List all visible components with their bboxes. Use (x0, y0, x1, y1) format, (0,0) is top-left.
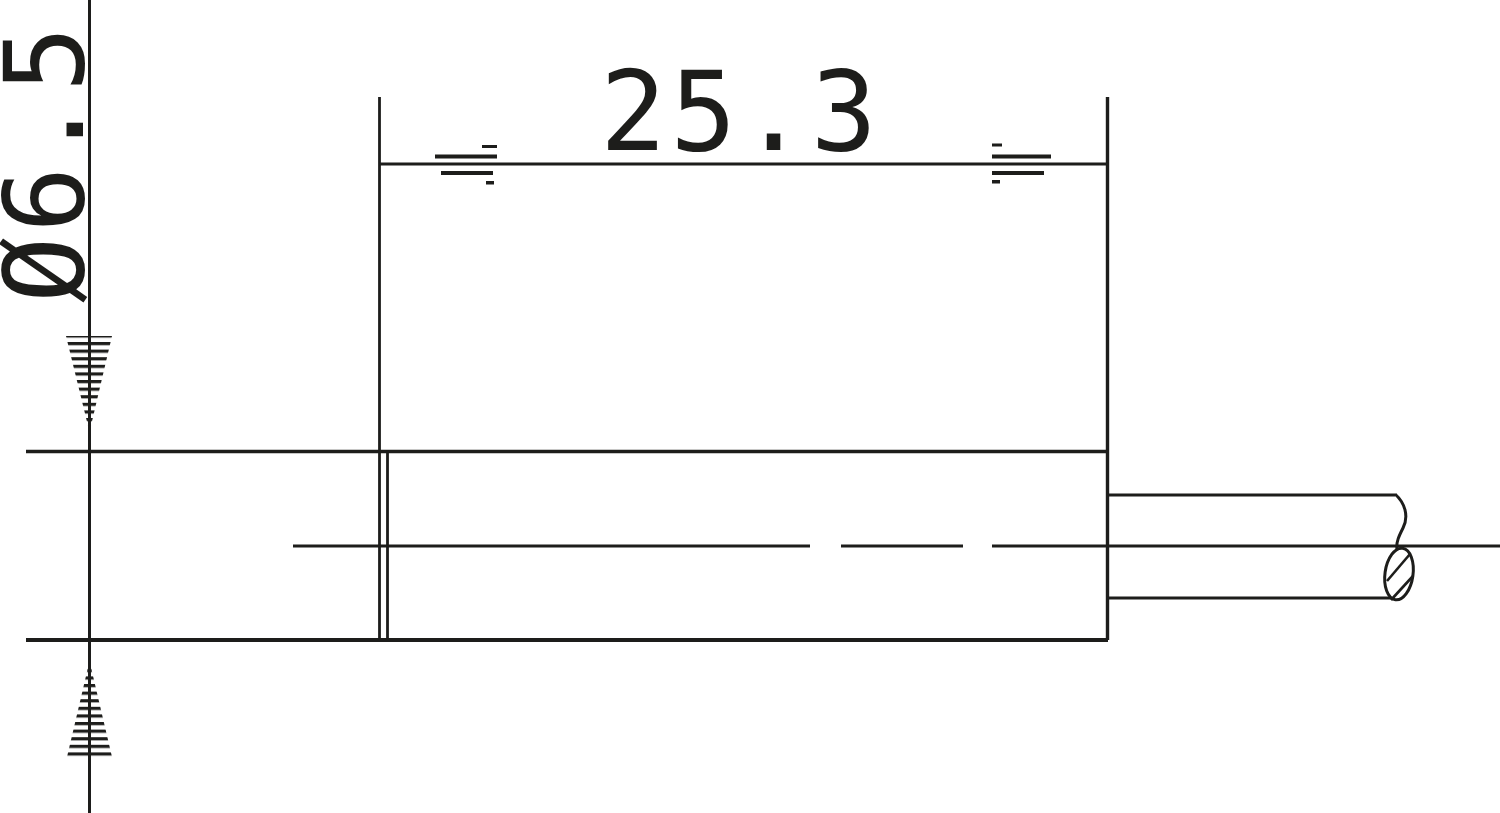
wire-break-curve (1395, 494, 1406, 549)
diameter-arrowhead-bottom (67, 661, 112, 757)
diameter-arrowhead-top (66, 336, 112, 432)
technical-drawing-canvas: 25.3 Ø6.5 (0, 0, 1500, 813)
wire-section-ellipse (1382, 546, 1417, 601)
length-dimension-label: 25.3 (600, 57, 881, 167)
diameter-dimension-label: Ø6.5 (0, 22, 100, 303)
